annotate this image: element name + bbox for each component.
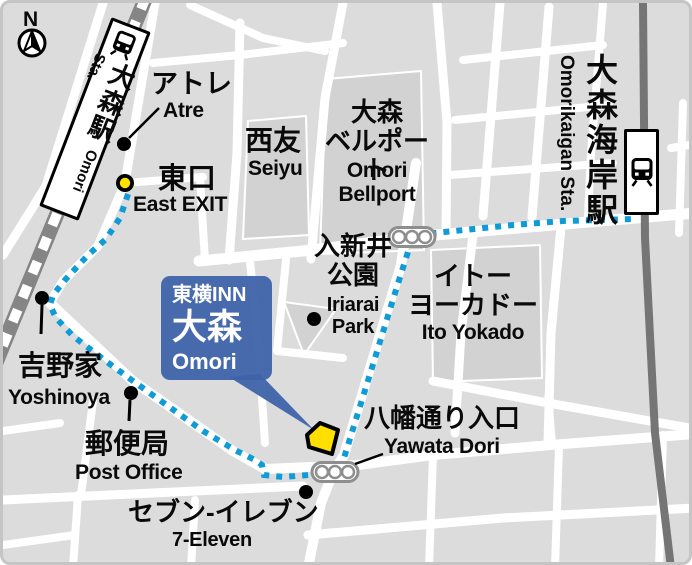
label-bellport-en: OmoriBellport [315,159,439,206]
hotel-callout: 東横INN 大森 Omori [161,276,272,380]
post-office-dot [124,386,138,400]
post-office-stem [129,400,130,421]
label-atre-jp: アトレ [151,69,232,99]
atre-dot [117,137,131,151]
railway-keikyu-line [643,3,671,565]
omorikaigan-station-name-en: Omorikaigan Sta. [555,55,577,293]
omori-area-map: N 大森駅 Omori Sta. 大森海岸駅 Omorikaigan Sta. [0,0,692,565]
label-yokado-jp: イトーヨーカドー [406,262,540,320]
yoshinoya-dot [35,291,49,305]
compass-north-label: N [23,8,38,32]
label-iriarai-jp: 入新井公園 [311,232,395,290]
label-yokado-en: Ito Yokado [406,321,540,345]
hotel-name-jp: 大森 [172,308,272,348]
label-yoshinoya-jp: 吉野家 [18,350,102,381]
label-yawata-jp: 八幡通り入口 [364,404,520,433]
label-seven-eleven-en: 7-Eleven [172,529,252,551]
label-yawata-en: Yawata Dori [384,435,500,459]
label-post-office-jp: 郵便局 [85,428,169,459]
label-seven-eleven-jp: セブン-イレブン [128,498,319,527]
hotel-brand: 東横INN [172,282,272,308]
label-seiyu-en: Seiyu [248,157,303,181]
label-east-exit-en: East EXIT [133,193,227,217]
callout-tail [229,374,314,430]
hotel-name-en: Omori [172,348,272,376]
omorikaigan-station-name-jp: 大森海岸駅 [577,53,623,293]
yoshinoya-stem [41,305,42,334]
east-exit-dot [120,178,130,188]
label-east-exit-jp: 東口 [158,163,216,195]
label-atre-en: Atre [163,99,204,123]
omorikaigan-station-box [624,129,659,215]
label-iriarai-en: IriaraiPark [315,294,391,339]
traffic-light-iriarai [389,228,435,247]
label-post-office-en: Post Office [75,461,183,485]
train-icon [630,157,654,187]
label-seiyu-jp: 西友 [245,125,301,156]
omorikaigan-station-label: 大森海岸駅 Omorikaigan Sta. [555,53,623,293]
label-yoshinoya-en: Yoshinoya [8,386,110,410]
compass-icon [19,30,45,56]
traffic-light-yawata [312,463,358,482]
